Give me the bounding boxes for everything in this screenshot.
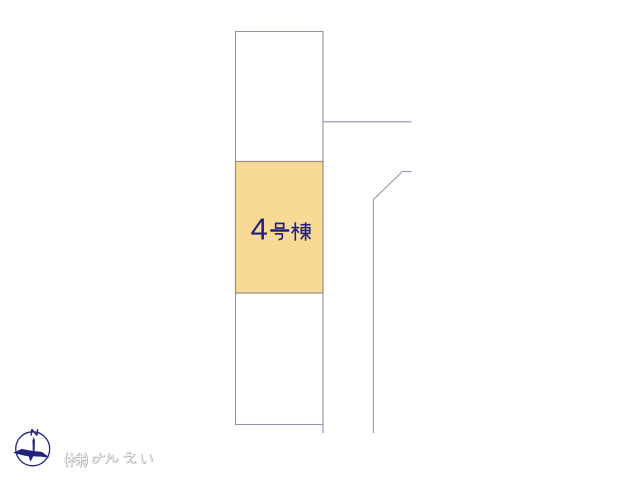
svg-text:4: 4 — [251, 212, 268, 247]
